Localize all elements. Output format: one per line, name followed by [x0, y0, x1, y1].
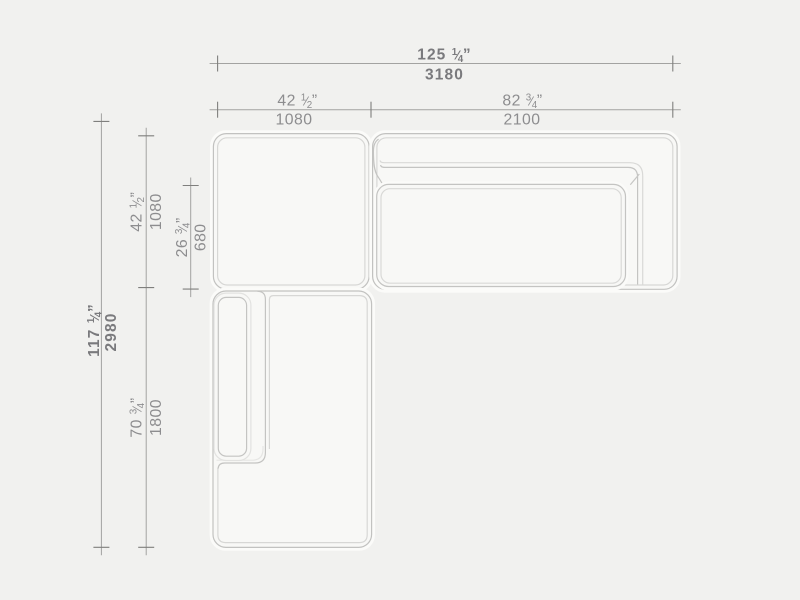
svg-text:2980: 2980	[103, 313, 120, 352]
svg-text:125 1⁄4”: 125 1⁄4”	[417, 47, 472, 66]
svg-text:680: 680	[192, 223, 209, 251]
svg-text:26 3⁄4”: 26 3⁄4”	[174, 217, 193, 257]
svg-text:42 1⁄2”: 42 1⁄2”	[277, 93, 317, 112]
svg-text:70 3⁄4”: 70 3⁄4”	[128, 397, 147, 437]
svg-text:2100: 2100	[504, 112, 541, 129]
svg-text:1800: 1800	[148, 399, 165, 436]
svg-text:42 1⁄2”: 42 1⁄2”	[128, 192, 147, 232]
svg-text:82 3⁄4”: 82 3⁄4”	[502, 93, 542, 112]
svg-text:3180: 3180	[425, 67, 464, 84]
svg-text:1080: 1080	[148, 193, 165, 230]
svg-text:117 1⁄4”: 117 1⁄4”	[86, 303, 105, 357]
svg-text:1080: 1080	[276, 112, 313, 129]
